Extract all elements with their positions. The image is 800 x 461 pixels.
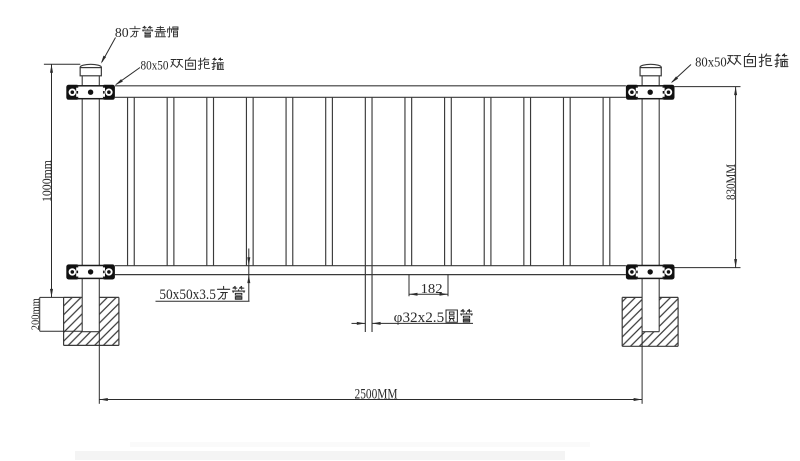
svg-text:200mm: 200mm	[30, 298, 42, 330]
svg-text:80: 80	[115, 25, 129, 40]
svg-text:1000mm: 1000mm	[39, 160, 54, 202]
svg-text:φ32x2.5: φ32x2.5	[394, 310, 445, 326]
svg-text:80x50: 80x50	[695, 56, 727, 71]
svg-text:830MM: 830MM	[723, 164, 738, 200]
svg-text:80x50: 80x50	[141, 57, 169, 72]
svg-text:2500MM: 2500MM	[355, 387, 398, 403]
svg-text:182: 182	[421, 282, 443, 297]
svg-text:50x50x3.5: 50x50x3.5	[159, 287, 216, 303]
